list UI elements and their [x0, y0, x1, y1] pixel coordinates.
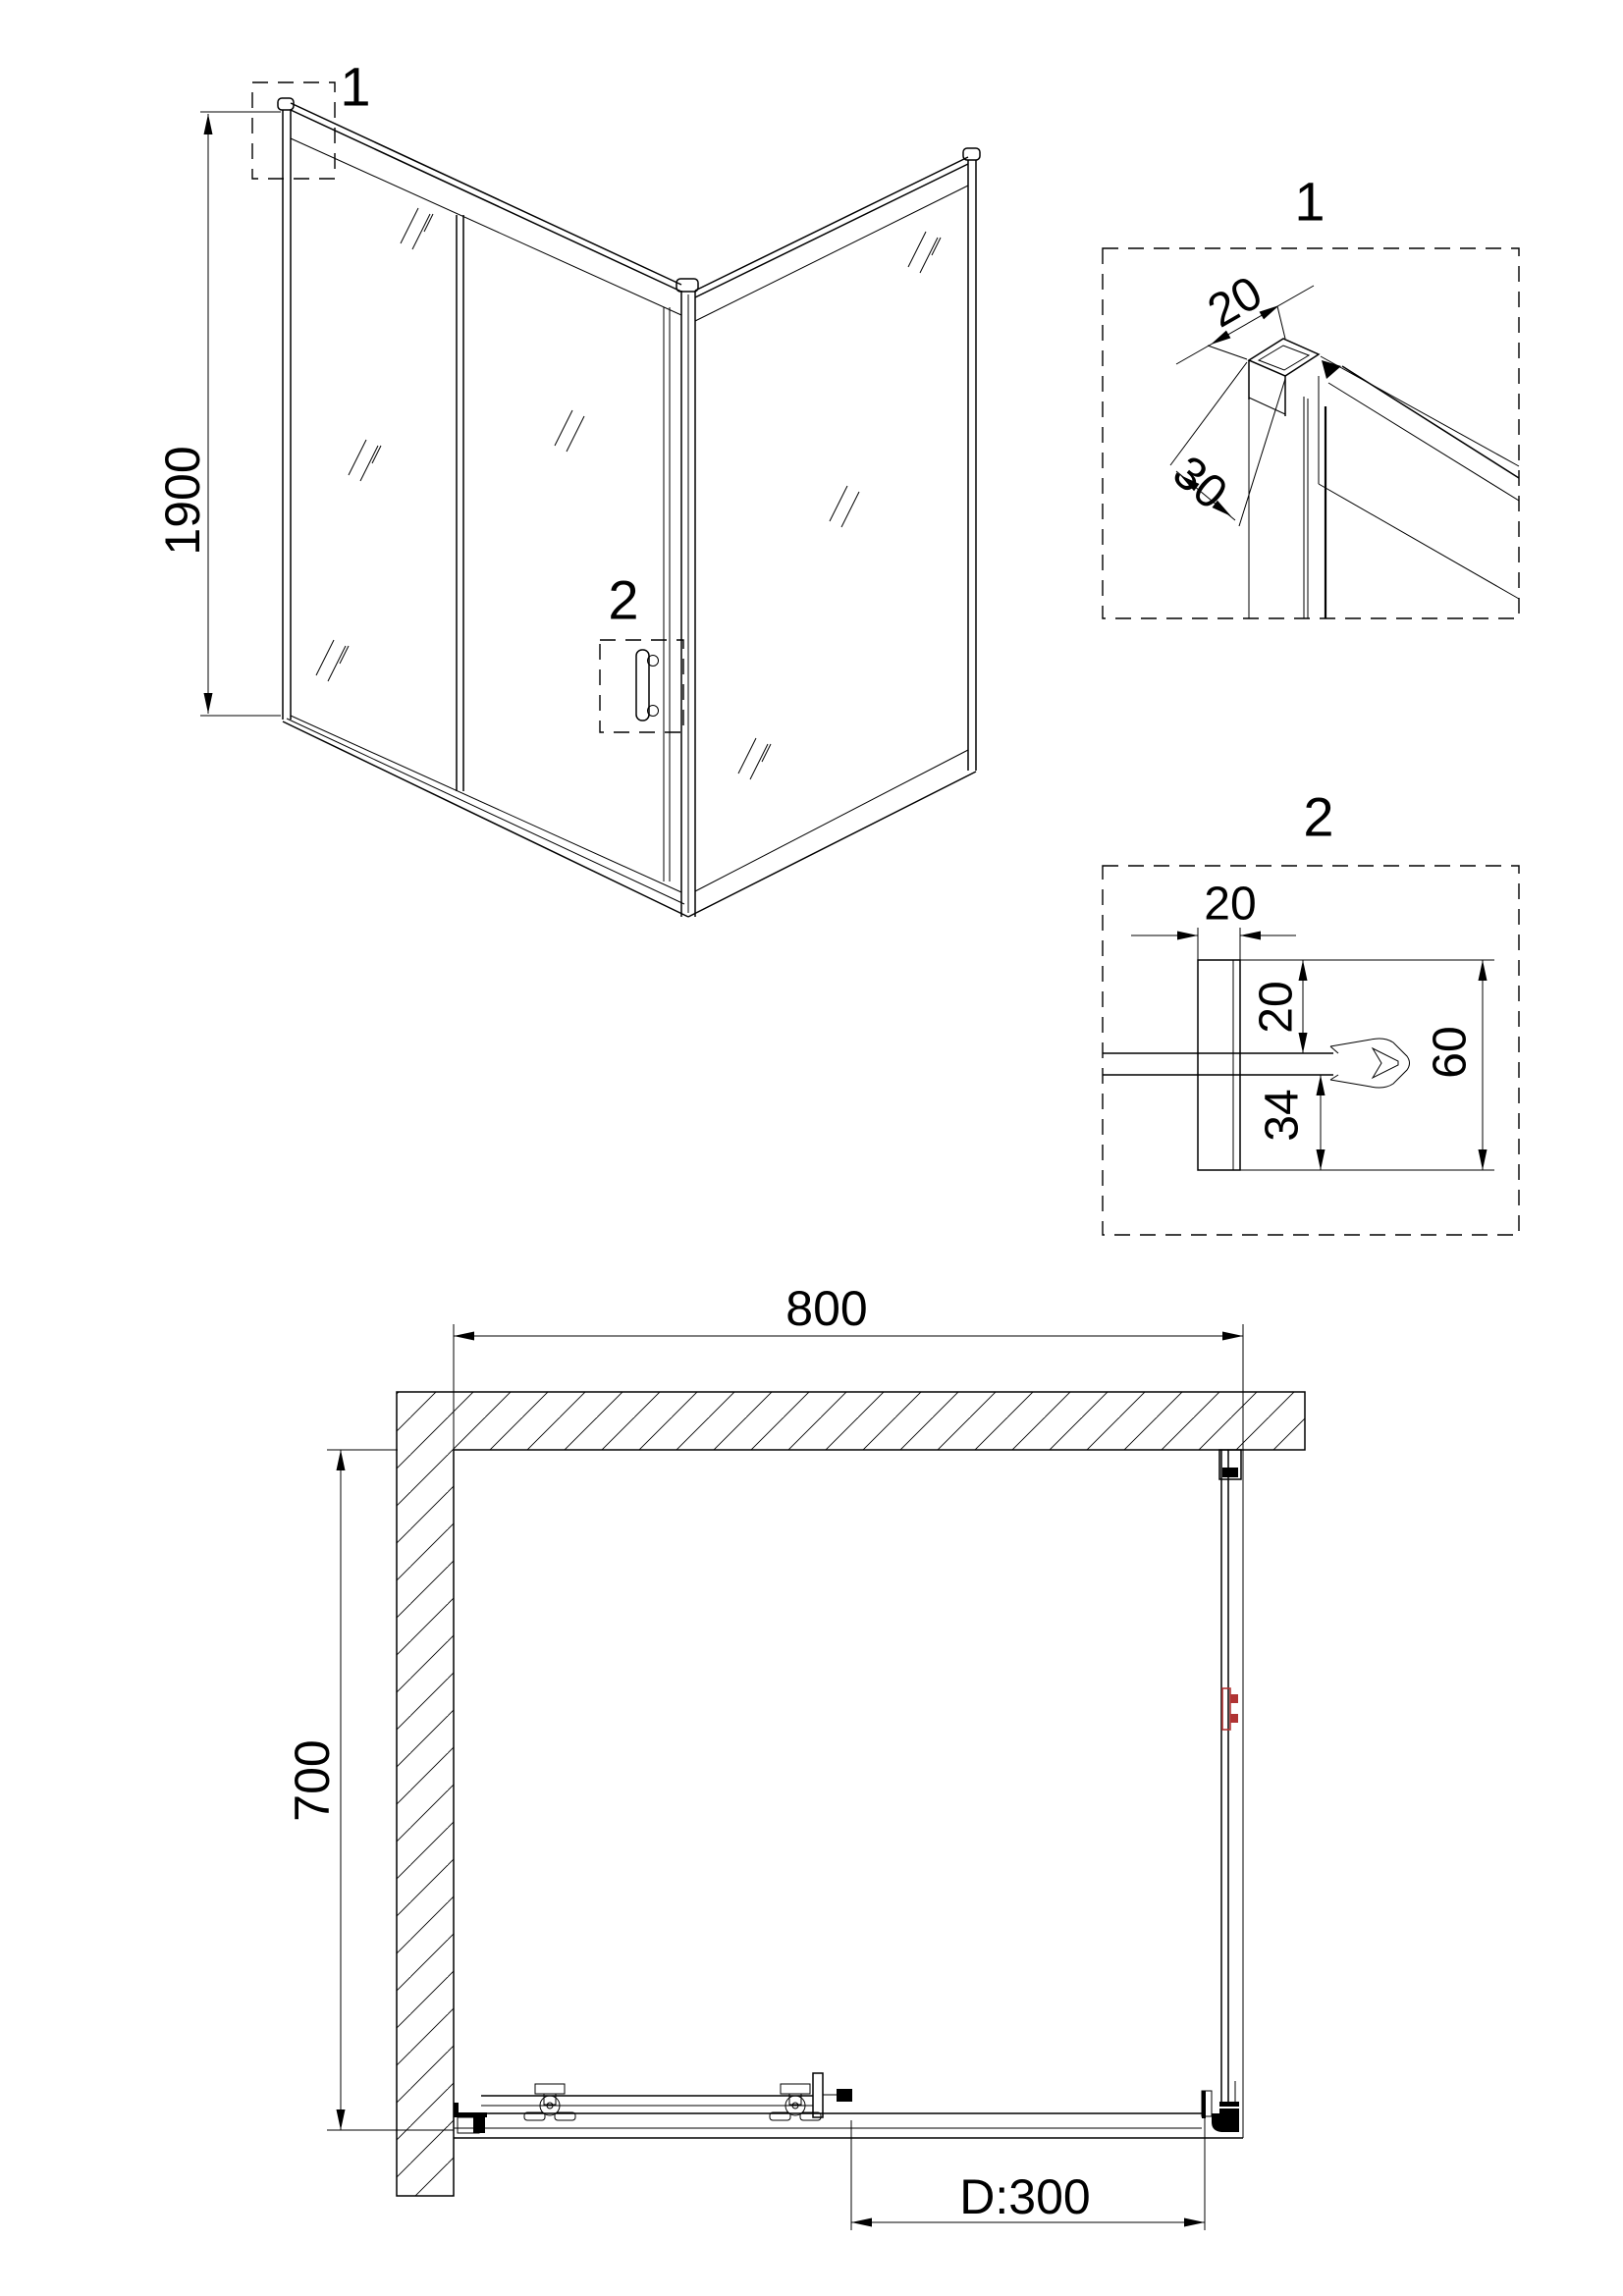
- height-dim-label: 1900: [155, 446, 210, 555]
- plan-view: 800 700: [285, 1281, 1305, 2230]
- red-bracket: [1222, 1688, 1238, 1730]
- technical-drawing: 1900: [0, 0, 1623, 2296]
- perspective-view: 1900: [155, 56, 980, 918]
- plan-depth-label: 700: [285, 1739, 340, 1821]
- detail-view-1: 1 20: [1103, 171, 1519, 619]
- detail-view-2: 2 20: [1103, 786, 1519, 1236]
- bottom-track: [454, 2113, 1243, 2138]
- callout-1: 1: [252, 56, 371, 180]
- detail-2-title: 2: [1303, 786, 1333, 848]
- detail-2-dim-34-label: 34: [1257, 1089, 1309, 1141]
- detail-1-dim-20-label: 20: [1200, 267, 1271, 339]
- corner-profile-section: [1249, 339, 1341, 416]
- side-rail-glass-lines: [1249, 356, 1519, 618]
- front-top-frame: [291, 103, 681, 315]
- corner-post: [676, 279, 698, 917]
- detail-2-dim-20-side-label: 20: [1251, 981, 1303, 1033]
- plan-width-label: 800: [785, 1281, 867, 1336]
- callout-1-label: 1: [340, 56, 370, 118]
- glass-reflection-marks: [316, 208, 941, 779]
- wall-section: [397, 1392, 1305, 2196]
- door-right-edge: [664, 307, 670, 881]
- left-frame-profile: [278, 98, 294, 720]
- door-divider-profile: [457, 215, 463, 791]
- detail-2-dim-20-top: 20: [1131, 879, 1296, 961]
- plan-door-label: D:300: [959, 2169, 1090, 2224]
- plan-door-leaf: [481, 2073, 852, 2117]
- detail-1-dim-30: 30: [1163, 362, 1285, 526]
- detail-2-dim-34: 34: [1257, 1075, 1325, 1170]
- glass-seal: [1330, 1039, 1410, 1088]
- side-bottom-frame: [688, 750, 976, 917]
- roller-assembly-left: [524, 2084, 575, 2120]
- side-top-frame: [695, 157, 968, 321]
- glass-section: [1103, 1053, 1333, 1075]
- plan-side-panel: [1219, 1450, 1241, 2106]
- corner-bracket-right: [1202, 2091, 1239, 2132]
- wall-profile-section: [1198, 960, 1240, 1170]
- detail-2-dim-20-side: 20: [1251, 960, 1308, 1053]
- detail-2-dim-20-top-label: 20: [1204, 879, 1256, 931]
- detail-2-dim-60-label: 60: [1425, 1026, 1477, 1078]
- callout-2-label: 2: [608, 569, 638, 631]
- detail-2-dim-60: 60: [1425, 960, 1488, 1170]
- detail-1-dim-30-label: 30: [1163, 447, 1237, 520]
- door-handle: [636, 650, 659, 721]
- dimension-height-1900: 1900: [155, 112, 281, 716]
- side-right-profile: [963, 148, 980, 771]
- detail-1-title: 1: [1294, 171, 1325, 233]
- front-bottom-frame: [283, 716, 688, 917]
